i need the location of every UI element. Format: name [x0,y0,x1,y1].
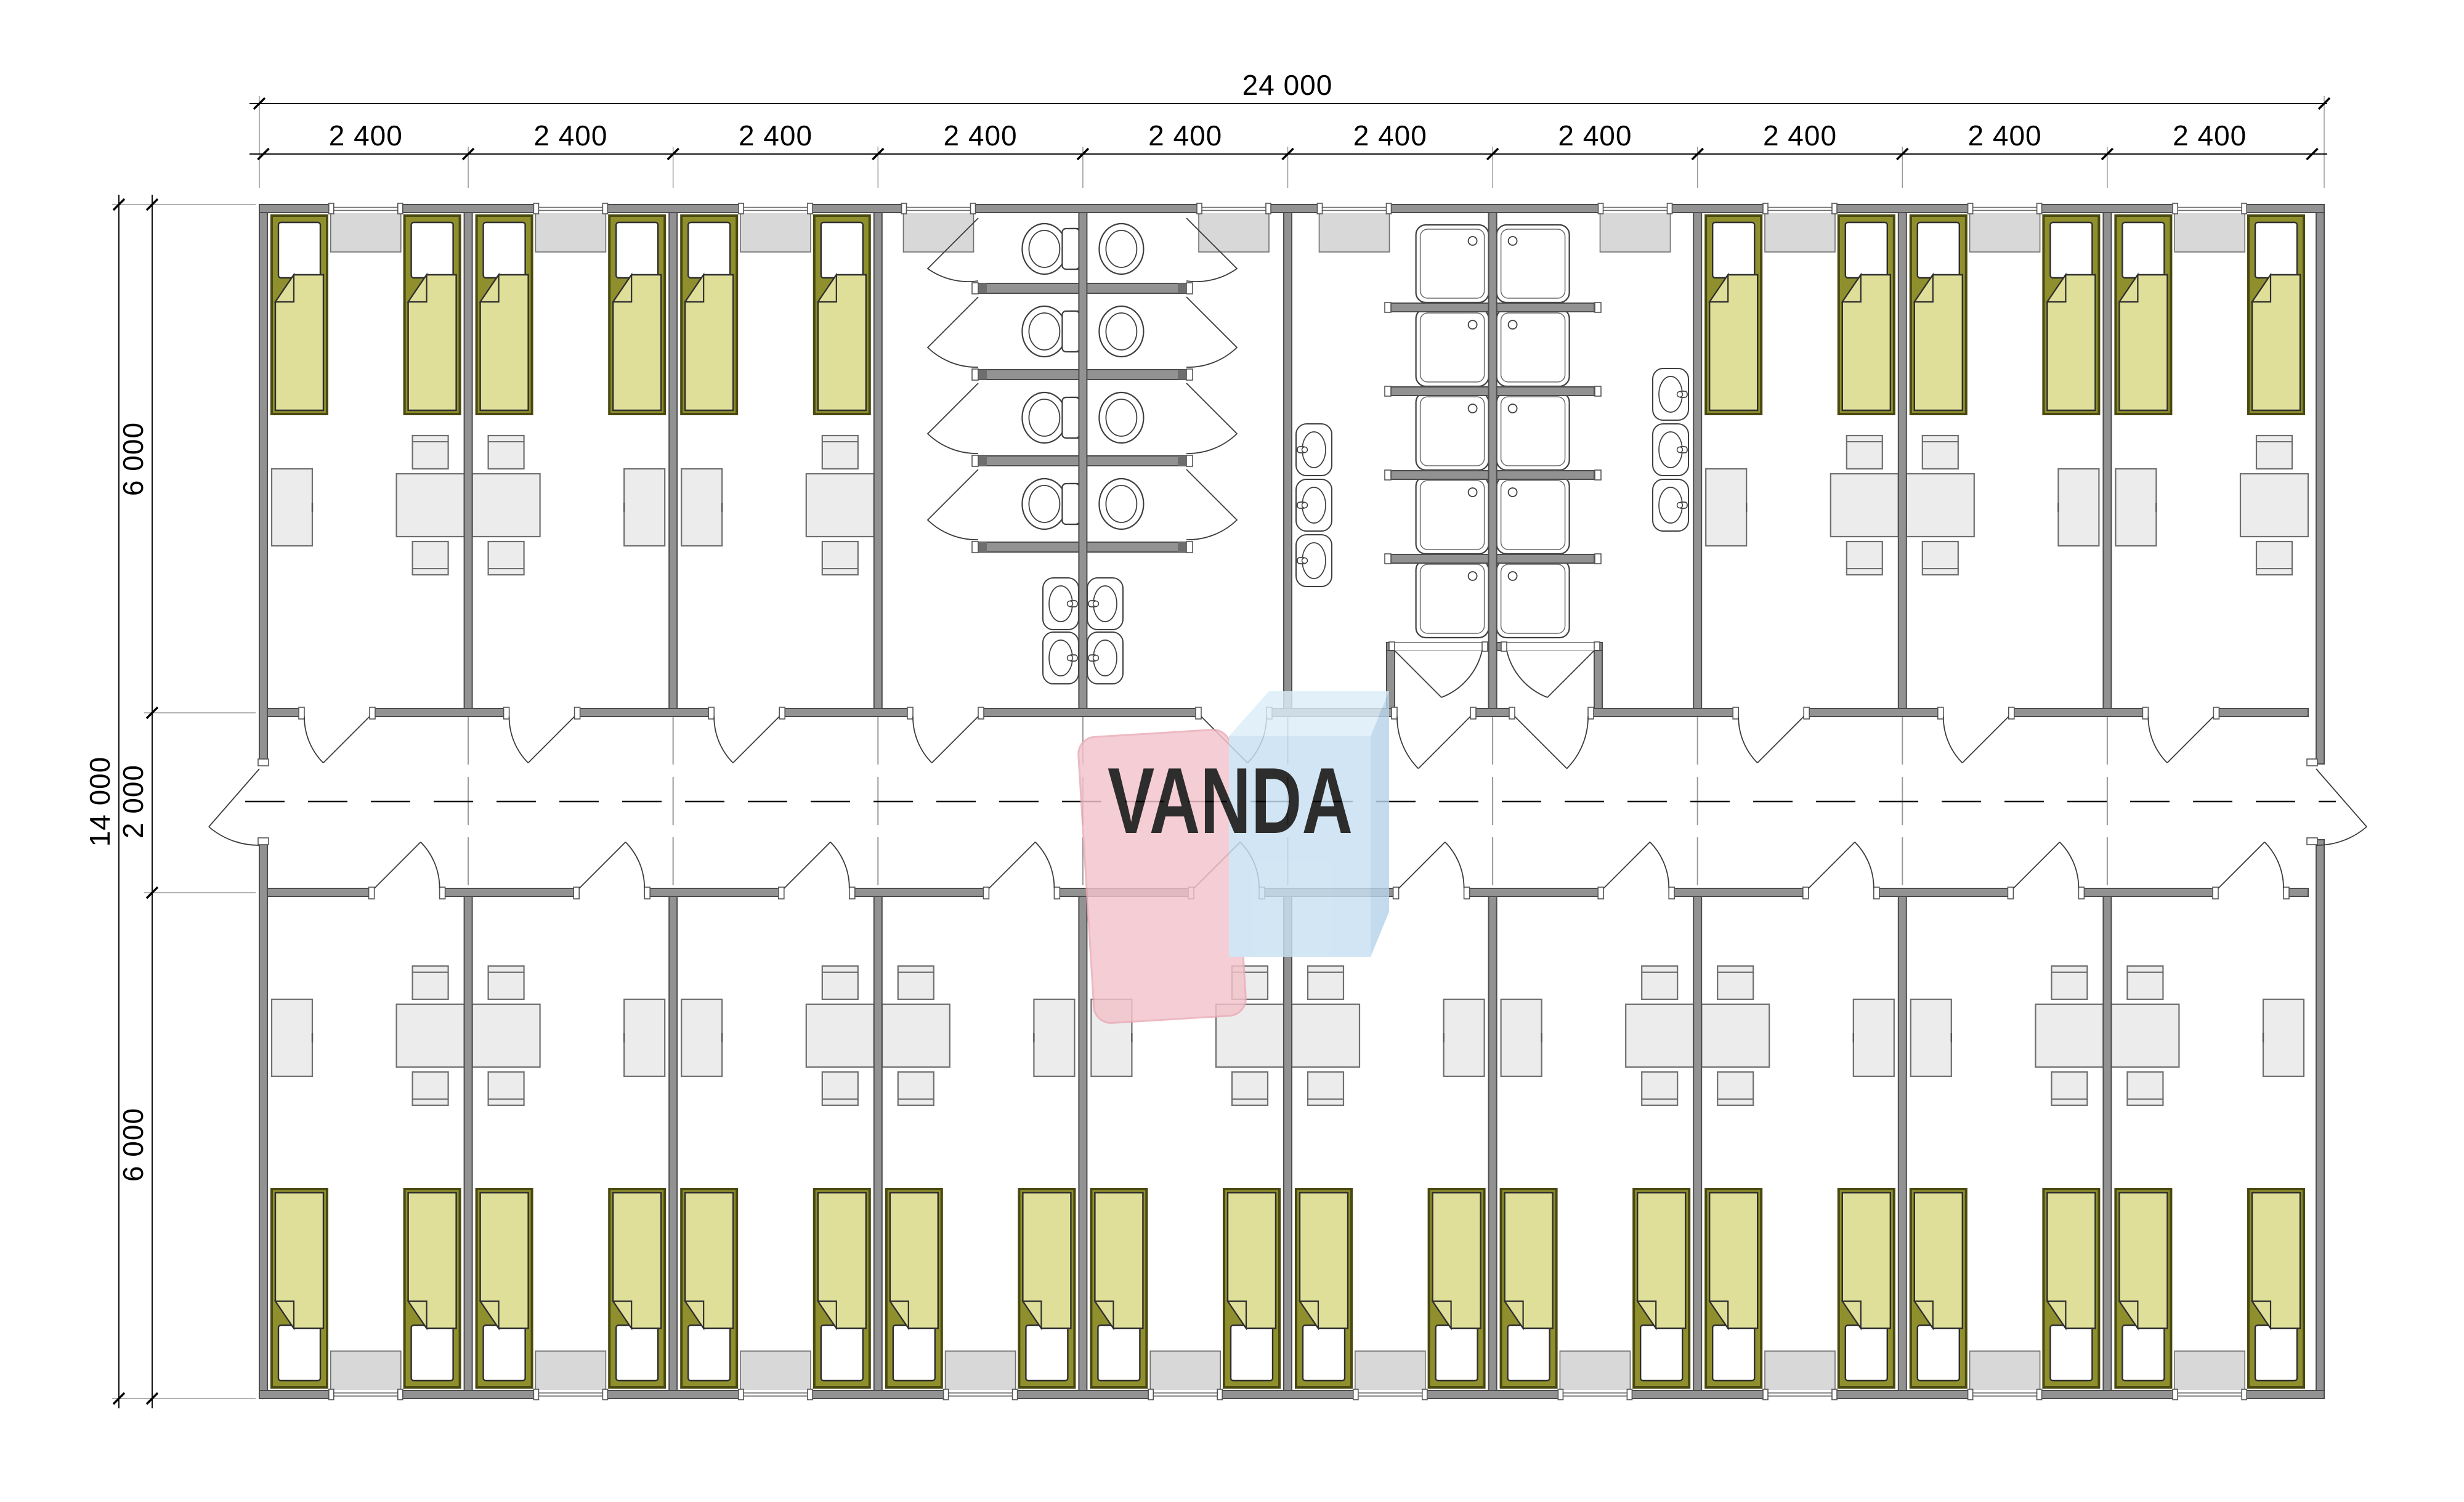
door-swing-arc [304,716,323,763]
door-leaf [2013,842,2059,888]
dim-total-height-label: 14 000 [84,757,116,847]
wardrobe-body [1706,469,1746,546]
shower-stub-wall [1391,303,1489,312]
chair-seat [488,966,524,999]
door-jamb [1588,707,1594,719]
bed [1501,1189,1557,1387]
bed-pillow [411,1325,453,1381]
wardrobe-body [624,469,665,546]
door-swing-arc [1035,842,1055,888]
bed [609,1189,665,1387]
door-jamb [2213,707,2219,719]
window-opening [744,204,808,213]
chair-seat [898,1072,934,1105]
window-opening [2178,204,2242,213]
bed [1839,1189,1894,1387]
chair-seat [2256,436,2292,469]
chair [898,1072,934,1105]
door-leaf [989,842,1035,888]
window-opening [2178,1390,2242,1399]
dim-segment-label: 2 000 [117,765,149,838]
wardrobe-body [2263,999,2304,1076]
bed [1911,1189,1966,1387]
door-jamb [1389,642,1395,651]
partition-wall-bottom-band [874,896,882,1390]
wardrobe-body [681,469,722,546]
wardrobe-body [1911,999,1951,1076]
wardrobe [624,999,665,1076]
bed-pillow [1712,1325,1754,1381]
door-leaf [2167,716,2213,763]
sink [1087,632,1123,684]
door-swing-arc [625,842,644,888]
chair [822,436,858,469]
bed [1091,1189,1146,1387]
bed-pillow [484,222,525,278]
door-swing-arc [1738,716,1757,763]
shower-tray [1416,476,1489,554]
toilet-tank [1062,311,1079,352]
door-jamb [978,707,984,719]
shower-drain [1509,404,1517,413]
wardrobe [1501,999,1542,1076]
wardrobe [272,469,312,546]
sink-tap [1093,656,1099,661]
shower-tray [1416,560,1489,638]
stall-door [928,469,978,540]
shower-stub-wall [1391,387,1489,396]
window-jamb [1599,203,1603,214]
toilet [1062,479,1143,529]
stall-wall-end [1178,283,1186,293]
chair [2127,1072,2163,1105]
door-swing-arc [421,842,440,888]
chair [2051,1072,2087,1105]
wardrobe-body [272,469,312,546]
partition-wall-bottom-band [1489,896,1497,1390]
door-opening [784,888,849,897]
window-sill [535,213,606,252]
bed [1634,1189,1689,1387]
window-jamb [808,1389,813,1400]
door-opening [579,888,644,897]
shower-stub-wall [1497,387,1594,396]
window-jamb [1968,203,1973,214]
partition-wall-top-band [1284,213,1292,708]
table [1701,1004,1769,1067]
wardrobe [624,469,665,546]
bed [814,1189,870,1387]
chair-seat [1642,1072,1677,1105]
door-jamb [1509,707,1515,719]
shower-drain [1469,237,1477,245]
bed [1296,1189,1352,1387]
window-sill [535,1351,606,1390]
stall-wall-end [978,456,987,466]
partition-wall-top-band [464,213,472,708]
door-jamb [849,887,855,899]
wardrobe-body [2115,469,2156,546]
sink [1653,424,1688,476]
door-leaf [1515,716,1566,768]
door-jamb [1804,707,1809,719]
window-sill [1970,213,2040,252]
window-sill [1765,1351,1835,1390]
window-opening [1358,1390,1422,1399]
door-leaf [1395,651,1441,697]
exterior-wall-left [259,840,267,1390]
window-sill [1765,213,1835,252]
bed-pillow [616,1325,658,1381]
door-swing-arc [1397,716,1419,768]
door-opening [509,708,575,717]
door-opening [1943,708,2009,717]
window-opening [1973,204,2037,213]
stub-jamb [1595,554,1601,564]
door-leaf [323,716,370,763]
shower-tray [1497,392,1570,470]
shower-drain [1509,320,1517,329]
sink-tap [1302,503,1308,508]
window-jamb [1422,1389,1427,1400]
wardrobe-body [1034,999,1074,1076]
sink-tap [1677,447,1683,453]
chair-seat [2051,1072,2087,1105]
toilet [1062,306,1143,357]
window-jamb [1148,1389,1153,1400]
door-swing-arc [1507,651,1547,697]
door-jamb [1501,642,1507,651]
door-leaf [1809,842,1855,888]
entry-door-leaf [209,769,259,827]
chair-seat [1717,966,1753,999]
chair [1923,542,1958,575]
window-opening [1973,1390,2037,1399]
window-jamb [1197,203,1202,214]
table [1907,474,1974,537]
toilet-tank [1062,484,1079,524]
sink-tap [1068,601,1073,607]
bed-pillow [1846,222,1887,278]
table [882,1004,950,1067]
chair-seat [1308,1072,1343,1105]
window-sill [946,1351,1016,1390]
door-jamb [440,887,445,899]
door-jamb [708,707,714,719]
door-jamb [1464,887,1470,899]
door-jamb [2008,887,2013,899]
bed-pillow [484,1325,525,1381]
door-opening [1809,888,1874,897]
chair [488,542,524,575]
bed-pillow [2255,1325,2297,1381]
floor-plan: 24 000 14 000 2 4002 4002 4002 4002 4002… [0,0,2464,1502]
bed-pillow [1436,1325,1478,1381]
shower-tray [1416,309,1489,386]
chair [1717,966,1753,999]
shower-drain [1469,404,1477,413]
toilet-seat [1029,313,1060,350]
bed-pillow [688,1325,730,1381]
wardrobe-body [1501,999,1542,1076]
chair-seat [413,966,448,999]
bed-pillow [1303,1325,1345,1381]
window-jamb [971,203,976,214]
bed [2248,216,2304,414]
door-swing-arc [2060,842,2079,888]
door-jamb [2078,887,2084,899]
window-sill [740,213,811,252]
shower-stub-wall [1391,471,1489,479]
wardrobe [1444,999,1485,1076]
shower-tray [1416,225,1489,302]
door-jamb [1482,642,1488,651]
toilet-seat [1029,399,1060,436]
stall-wall-end [978,542,987,552]
chair [822,966,858,999]
watermark-cube-top [1229,691,1389,736]
bed-pillow [411,222,453,278]
window-jamb [2242,203,2247,214]
door-jamb [1669,887,1674,899]
sink-tap [1302,558,1308,564]
dim-module-label: 2 400 [1763,120,1837,152]
bed-pillow [1918,1325,1959,1381]
bed [477,1189,532,1387]
chair-seat [2127,966,2163,999]
window-jamb [808,203,813,214]
chair-seat [2127,1072,2163,1105]
stall-wall-end [1178,456,1186,466]
wardrobe-body [1444,999,1485,1076]
bed-pillow [1712,222,1754,278]
window-jamb [1832,203,1837,214]
door-jamb [1470,707,1476,719]
table [2240,474,2308,537]
shower-drain [1509,572,1517,580]
chair [413,436,448,469]
door-jamb [1598,887,1603,899]
partition-wall-top-band [1899,213,1907,708]
partition-wall-top-band [2103,213,2111,708]
dim-module-label: 2 400 [329,120,403,152]
wardrobe [2263,999,2304,1076]
chair-seat [898,966,934,999]
toilet-seat [1106,313,1137,350]
window-jamb [2037,1389,2042,1400]
bed-pillow [688,222,730,278]
partition-wall-top-band [669,213,677,708]
chair-seat [822,1072,858,1105]
bed [2043,216,2099,414]
door-opening [304,708,370,717]
window-sill [331,1351,401,1390]
window-jamb [1763,203,1768,214]
stub-jamb [1595,470,1601,480]
door-leaf [528,716,574,763]
door-leaf [1603,842,1650,888]
dim-segment-label: 6 000 [117,422,149,496]
shower-stub-wall [1391,554,1489,563]
bed [1429,1189,1485,1387]
stall-wall-end [978,370,987,380]
door-jamb [1803,887,1809,899]
toilet-seat [1106,230,1137,267]
sink [1043,632,1079,684]
chair-seat [1847,542,1882,575]
bed-pillow [278,222,320,278]
toilet-tank [1062,229,1079,269]
window-sill [1150,1351,1220,1390]
chair [413,966,448,999]
window-sill [1600,213,1671,252]
chair [1642,1072,1677,1105]
partition-wall-bottom-band [464,896,472,1390]
door-jamb [779,707,785,719]
shower-drain [1469,488,1477,497]
door-swing-arc [2264,842,2284,888]
door-swing-arc [1943,716,1963,763]
chair [488,1072,524,1105]
door-jamb [2142,707,2148,719]
wardrobe [1706,469,1746,546]
chair [1847,436,1882,469]
bed-pillow [1640,1325,1682,1381]
table [2035,1004,2103,1067]
bed-pillow [2050,222,2092,278]
sink [1653,368,1688,420]
door-jamb [2213,887,2218,899]
stub-jamb [1595,302,1601,312]
dim-module-label: 2 400 [739,120,813,152]
exterior-wall-left [259,213,267,764]
window-jamb [1387,203,1392,214]
shower-tray [1497,560,1570,638]
window-jamb [1353,1389,1358,1400]
stall-door [1186,383,1237,453]
chair [1923,436,1958,469]
chair-seat [1923,436,1958,469]
wardrobe-body [2058,469,2099,546]
chair [1717,1072,1753,1105]
door-leaf [375,842,421,888]
bed [609,216,665,414]
door-jamb [1393,887,1399,899]
chair-seat [1308,966,1343,999]
exterior-wall-right [2316,840,2324,1390]
bed [1911,216,1966,414]
window-jamb [602,203,607,214]
door-jamb [1392,707,1397,719]
window-jamb [1013,1389,1018,1400]
chair-seat [413,1072,448,1105]
bed [2043,1189,2099,1387]
dim-module-label: 2 400 [944,120,1018,152]
door-leaf [733,716,779,763]
bed [1224,1189,1279,1387]
bed-pillow [821,1325,863,1381]
door-opening [1515,708,1588,717]
entry-door-leaf [2316,769,2367,827]
bed-pillow [1508,1325,1550,1381]
stub-jamb [1385,302,1391,312]
table [1292,1004,1360,1067]
partition-wall-bottom-band [669,896,677,1390]
door-jamb [779,887,784,899]
wardrobe-body [681,999,722,1076]
door-swing-arc [714,716,733,763]
table [397,1004,464,1067]
bed-pillow [1026,1325,1068,1381]
chair-seat [1232,1072,1268,1105]
sink [1043,578,1079,630]
bed-pillow [1231,1325,1273,1381]
wardrobe [681,999,722,1076]
partition-wall-top-band [874,213,882,708]
door-jamb [1938,707,1943,719]
window-opening [1323,204,1387,213]
door-jamb [1594,642,1600,651]
partition-wall-bottom-band [1899,896,1907,1390]
partition-wall-bottom-band [1693,896,1701,1390]
door-opening [1399,888,1464,897]
window-jamb [1318,203,1323,214]
door-leaf [579,842,625,888]
dim-module-label: 2 400 [1353,120,1427,152]
bed-pillow [2122,1325,2164,1381]
bed-pillow [1098,1325,1140,1381]
door-leaf [2218,842,2264,888]
window-jamb [944,1389,949,1400]
stall-door [928,383,978,453]
window-jamb [398,1389,403,1400]
window-jamb [2173,1389,2178,1400]
door-jamb [1196,707,1201,719]
toilet-tank [1062,397,1079,438]
bed [477,216,532,414]
window-opening [538,204,602,213]
door-jamb [644,887,650,899]
chair [2256,436,2292,469]
stub-jamb [1385,470,1391,480]
toilet [1062,392,1143,443]
door-jamb [1054,887,1060,899]
sink [1296,424,1332,476]
table [472,474,540,537]
bed-pillow [278,1325,320,1381]
stub-jamb [1385,554,1391,564]
bed [2248,1189,2304,1387]
window-sill [740,1351,811,1390]
chair-seat [413,542,448,575]
door-opening [1603,888,1669,897]
door-swing-arc [830,842,849,888]
chair [2051,966,2087,999]
chair [1308,966,1343,999]
sink-tap [1677,392,1683,397]
bed-pillow [2050,1325,2092,1381]
stall-door [1186,469,1237,540]
table [472,1004,540,1067]
door-jamb [2307,759,2317,766]
stall-jamb [972,283,978,294]
partition-wall-bottom-band [1284,896,1292,1390]
table [1831,474,1899,537]
sink-tap [1302,447,1308,453]
toilet-seat [1106,399,1137,436]
window-sill [331,213,401,252]
window-sill [1355,1351,1425,1390]
